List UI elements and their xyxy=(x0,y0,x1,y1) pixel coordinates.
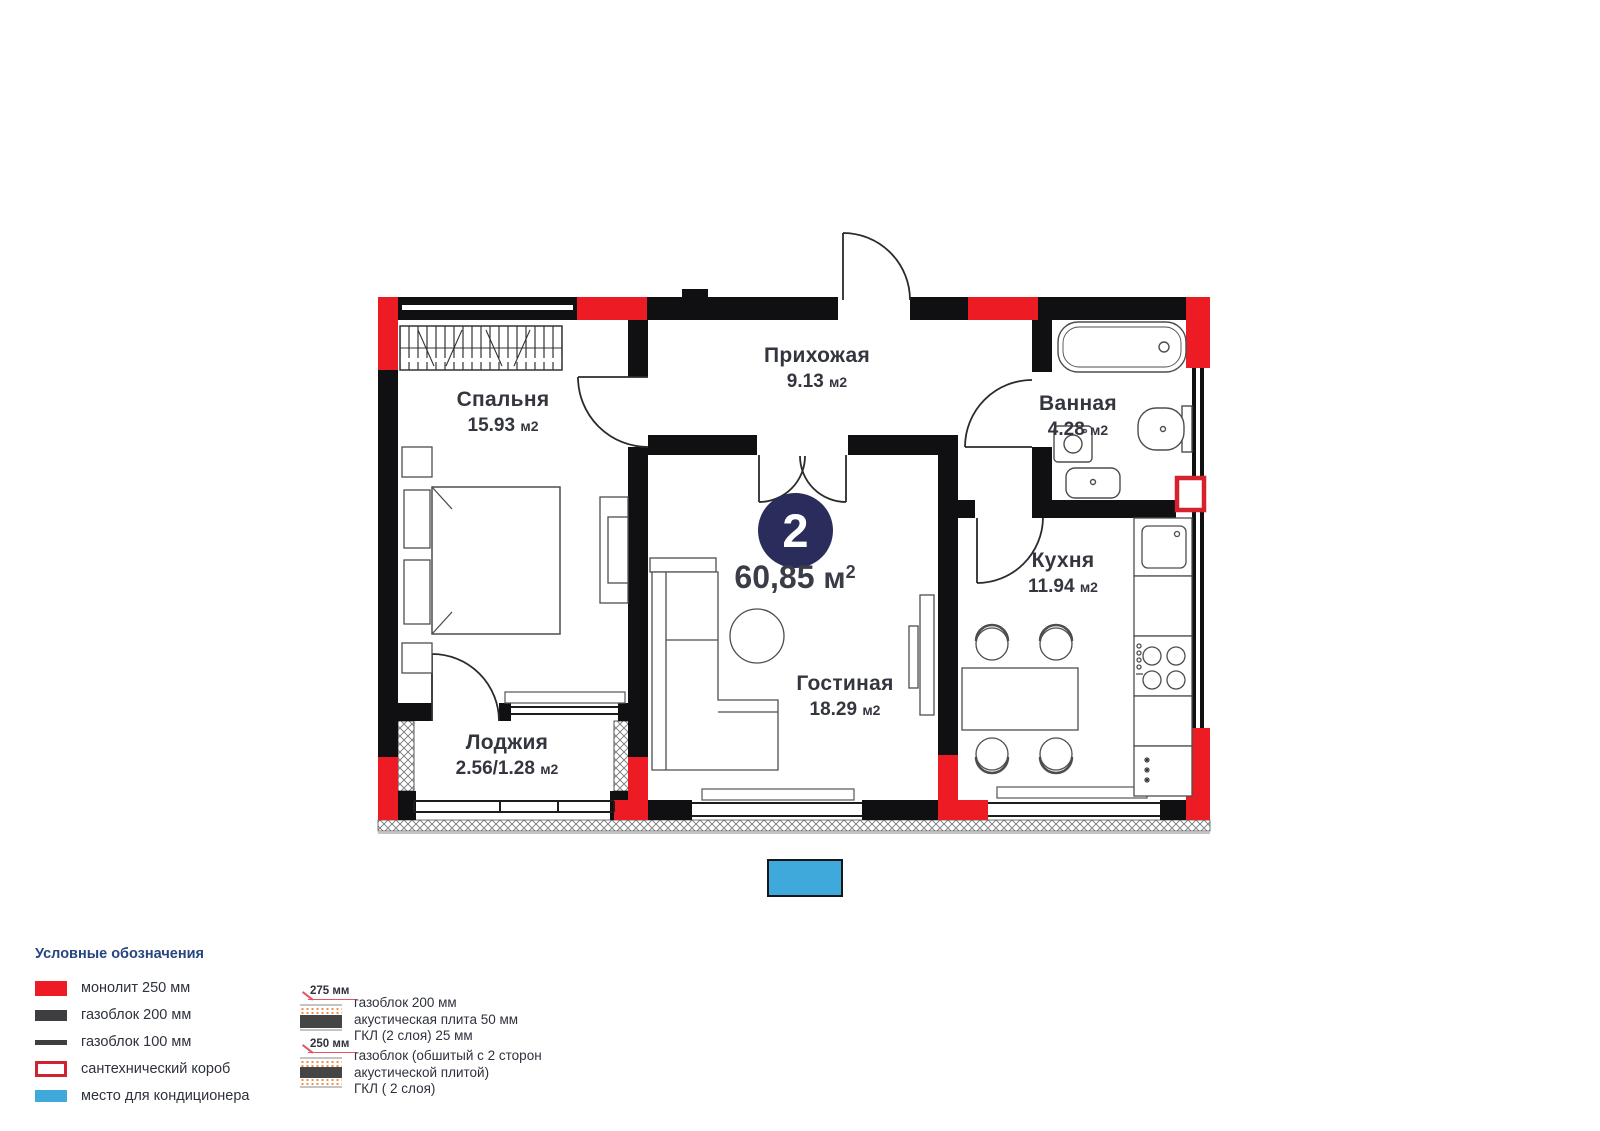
total-area: 60,85 м2 xyxy=(734,559,855,596)
room-name: Гостиная xyxy=(796,672,893,696)
room-name: Ванная xyxy=(1039,392,1117,416)
room-area: 2.56/1.28 м2 xyxy=(456,758,559,780)
pillow xyxy=(404,560,430,624)
room-name: Кухня xyxy=(1028,549,1098,573)
wall-double-line xyxy=(402,305,573,310)
plumbing-box xyxy=(1177,478,1204,510)
tv-unit xyxy=(909,595,934,715)
bed xyxy=(432,487,560,634)
bathroom-door xyxy=(965,380,1032,447)
room-label-living: Гостиная 18.29 м2 xyxy=(796,672,893,721)
legend-item-gasblock-200: газоблок 200 мм xyxy=(35,1007,249,1023)
room-label-hallway: Прихожая 9.13 м2 xyxy=(764,344,870,393)
legend: Условные обозначения монолит 250 мм газо… xyxy=(35,946,249,1115)
room-label-bedroom: Спальня 15.93 м2 xyxy=(457,388,550,437)
coffee-table xyxy=(730,609,784,663)
pillow xyxy=(404,490,430,548)
bathroom-sink xyxy=(1066,468,1120,498)
bedroom-furniture xyxy=(400,326,628,673)
room-name: Лоджия xyxy=(456,731,559,755)
ac-spot xyxy=(768,860,842,896)
legend-item-plumbing-box: сантехнический короб xyxy=(35,1061,249,1077)
plumbing-box-swatch xyxy=(35,1061,67,1077)
wall-section-swatch xyxy=(300,1004,342,1031)
room-name: Прихожая xyxy=(764,344,870,368)
legend-title: Условные обозначения xyxy=(35,946,249,962)
bedroom-door xyxy=(578,377,648,447)
room-label-bathroom: Ванная 4.28 м2 xyxy=(1039,392,1117,441)
wall-section-250: 250 мм газоблок (обшитый с 2 сторон акус… xyxy=(300,1034,630,1089)
room-area: 11.94 м2 xyxy=(1028,576,1098,598)
bathtub xyxy=(1058,322,1186,372)
desk xyxy=(600,497,628,603)
room-area: 9.13 м2 xyxy=(764,371,870,393)
toilet xyxy=(1138,406,1192,452)
kitchen-sink xyxy=(1142,526,1186,568)
room-label-kitchen: Кухня 11.94 м2 xyxy=(1028,549,1098,598)
wall-section-description: газоблок (обшитый с 2 сторон акустическо… xyxy=(354,1048,542,1098)
room-area: 18.29 м2 xyxy=(796,699,893,721)
ac-spot-swatch xyxy=(35,1090,67,1102)
room-name: Спальня xyxy=(457,388,550,412)
apartment-type-badge: 2 xyxy=(758,493,833,568)
gasblock-100-swatch xyxy=(35,1040,67,1045)
wall-section-swatch xyxy=(300,1057,342,1088)
room-area: 15.93 м2 xyxy=(457,415,550,437)
room-label-loggia: Лоджия 2.56/1.28 м2 xyxy=(456,731,559,780)
loggia-door xyxy=(432,654,499,721)
floorplan-page: Прихожая 9.13 м2 Спальня 15.93 м2 Ванная… xyxy=(0,0,1600,1131)
monolith-swatch xyxy=(35,981,67,996)
dining-table xyxy=(962,668,1078,730)
legend-item-ac-spot: место для кондиционера xyxy=(35,1088,249,1104)
wall-section-275: 275 мм газоблок 200 мм акустическая плит… xyxy=(300,981,630,1032)
legend-item-monolith: монолит 250 мм xyxy=(35,980,249,996)
room-area: 4.28 м2 xyxy=(1039,419,1117,441)
gasblock-200-swatch xyxy=(35,1010,67,1021)
wall-section-dimension: 275 мм xyxy=(308,985,357,1000)
wall-section-dimension: 250 мм xyxy=(308,1038,357,1053)
legend-item-gasblock-100: газоблок 100 мм xyxy=(35,1034,249,1050)
nightstand xyxy=(402,447,432,477)
nightstand xyxy=(402,643,432,673)
wardrobe xyxy=(400,326,562,370)
entrance-door xyxy=(843,233,910,300)
